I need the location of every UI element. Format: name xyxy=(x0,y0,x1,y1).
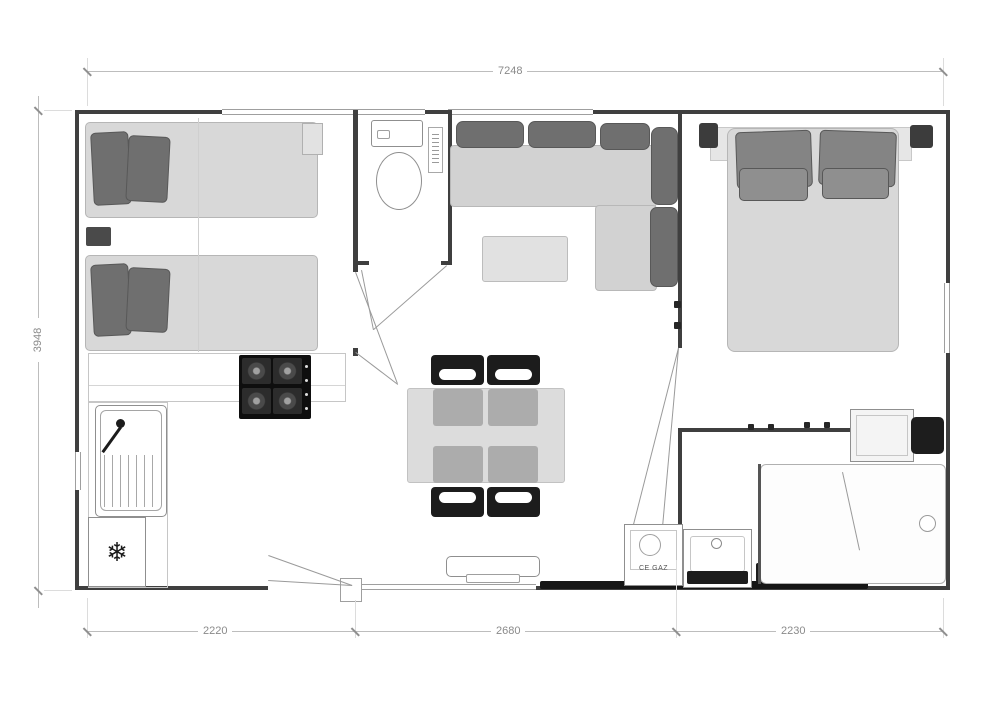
shower-wall-edge xyxy=(758,464,761,584)
sofa-side-cushion xyxy=(650,207,678,287)
wc-bottom-wall-right xyxy=(441,261,452,265)
twin-bed-2-pillow xyxy=(125,267,170,333)
dining-table xyxy=(407,388,565,483)
dining-chair-seat xyxy=(433,389,483,426)
hob-knob xyxy=(305,393,308,396)
chair-back-slot xyxy=(439,492,476,503)
window-left-wall xyxy=(75,452,81,490)
sink-drainer xyxy=(104,455,158,507)
snowflake-icon: ❄ xyxy=(88,517,146,587)
tv-mount xyxy=(466,574,520,583)
wall-heater-unit xyxy=(86,227,111,246)
gas-unit-dial xyxy=(639,534,661,556)
hob-burner xyxy=(273,358,302,384)
extension-line xyxy=(676,560,677,638)
floor-plan-canvas: ❄ CE GAZ 7248 3948 xyxy=(0,0,1000,705)
bath-vanity-inner xyxy=(856,415,908,456)
partition-hinge-dot xyxy=(674,322,681,329)
dimension-label-left: 3948 xyxy=(31,318,45,362)
sofa-seat xyxy=(450,145,657,207)
hob-knob xyxy=(305,407,308,410)
bedside-shelf xyxy=(302,123,323,155)
sofa-seat-corner xyxy=(595,205,657,291)
extension-line xyxy=(44,110,72,111)
sofa-back-cushion xyxy=(456,121,524,148)
bedroom2-partition-wall xyxy=(678,110,682,348)
dining-chair-back xyxy=(487,355,540,385)
gas-unit-label: CE GAZ xyxy=(624,565,683,572)
hob-burner xyxy=(242,358,271,384)
sofa-back-cushion xyxy=(600,123,650,150)
nightstand xyxy=(699,123,718,148)
chair-back-slot xyxy=(495,492,532,503)
extension-line xyxy=(943,58,944,106)
bedroom1-guide-line xyxy=(198,118,199,352)
bath-dark-sink xyxy=(911,417,944,454)
partition-hinge-dot xyxy=(674,301,681,308)
wall-hook-dot xyxy=(804,422,810,428)
window-bottom-wall xyxy=(360,584,536,590)
bathroom-wall-horizontal xyxy=(682,428,852,432)
dimension-label-bottom-left: 2220 xyxy=(198,624,232,638)
sofa-back-cushion xyxy=(528,121,596,148)
dimension-label-top: 7248 xyxy=(493,64,527,78)
chair-back-slot xyxy=(439,369,476,380)
sofa-corner-cushion xyxy=(651,127,678,205)
wall-hook-dot xyxy=(768,424,774,430)
dining-chair-seat xyxy=(488,389,538,426)
gas-hob xyxy=(239,355,311,419)
washbasin-faucet xyxy=(711,538,722,549)
double-bed-pillow-small xyxy=(822,168,889,199)
extension-line xyxy=(44,590,72,591)
chair-back-slot xyxy=(495,369,532,380)
dining-chair-seat xyxy=(488,446,538,483)
hob-knob xyxy=(305,365,308,368)
window-right-wall xyxy=(944,283,950,353)
nightstand xyxy=(910,125,933,148)
dining-chair-seat xyxy=(433,446,483,483)
shower-drain xyxy=(919,515,936,532)
dining-chair-back xyxy=(487,487,540,517)
hob-burner xyxy=(273,388,302,414)
dimension-label-bottom-right: 2230 xyxy=(776,624,810,638)
dining-chair-back xyxy=(431,487,484,517)
wc-bottom-wall-left xyxy=(353,261,369,265)
hob-knob xyxy=(305,379,308,382)
wall-hook-dot xyxy=(824,422,830,428)
extension-line xyxy=(87,58,88,106)
wc-wall-label xyxy=(428,127,443,173)
double-bed-pillow-small xyxy=(739,168,808,201)
hob-burner xyxy=(242,388,271,414)
dining-chair-back xyxy=(431,355,484,385)
toilet-bowl xyxy=(376,152,422,210)
twin-bed-1-pillow xyxy=(125,135,170,203)
window-top-center xyxy=(448,109,593,115)
washbasin-front-panel xyxy=(687,571,748,584)
bedroom1-wall xyxy=(353,110,358,272)
dimension-label-bottom-middle: 2680 xyxy=(491,624,525,638)
wall-hook-dot xyxy=(748,424,754,430)
toilet-flush-button xyxy=(377,130,390,139)
window-top-left xyxy=(222,109,425,115)
coffee-table xyxy=(482,236,568,282)
